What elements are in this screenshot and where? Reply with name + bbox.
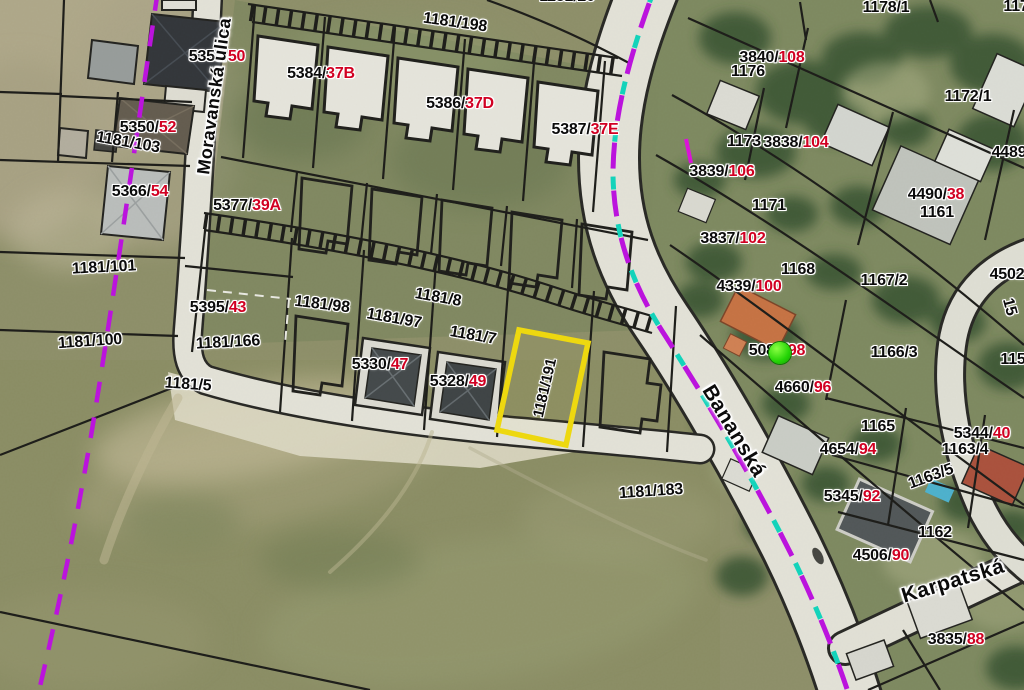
- cadastral-map-view[interactable]: 5356/505350/525366/545377/39A5384/37B538…: [0, 0, 1024, 690]
- imagery-grain: [0, 0, 1024, 690]
- map-canvas[interactable]: [0, 0, 1024, 690]
